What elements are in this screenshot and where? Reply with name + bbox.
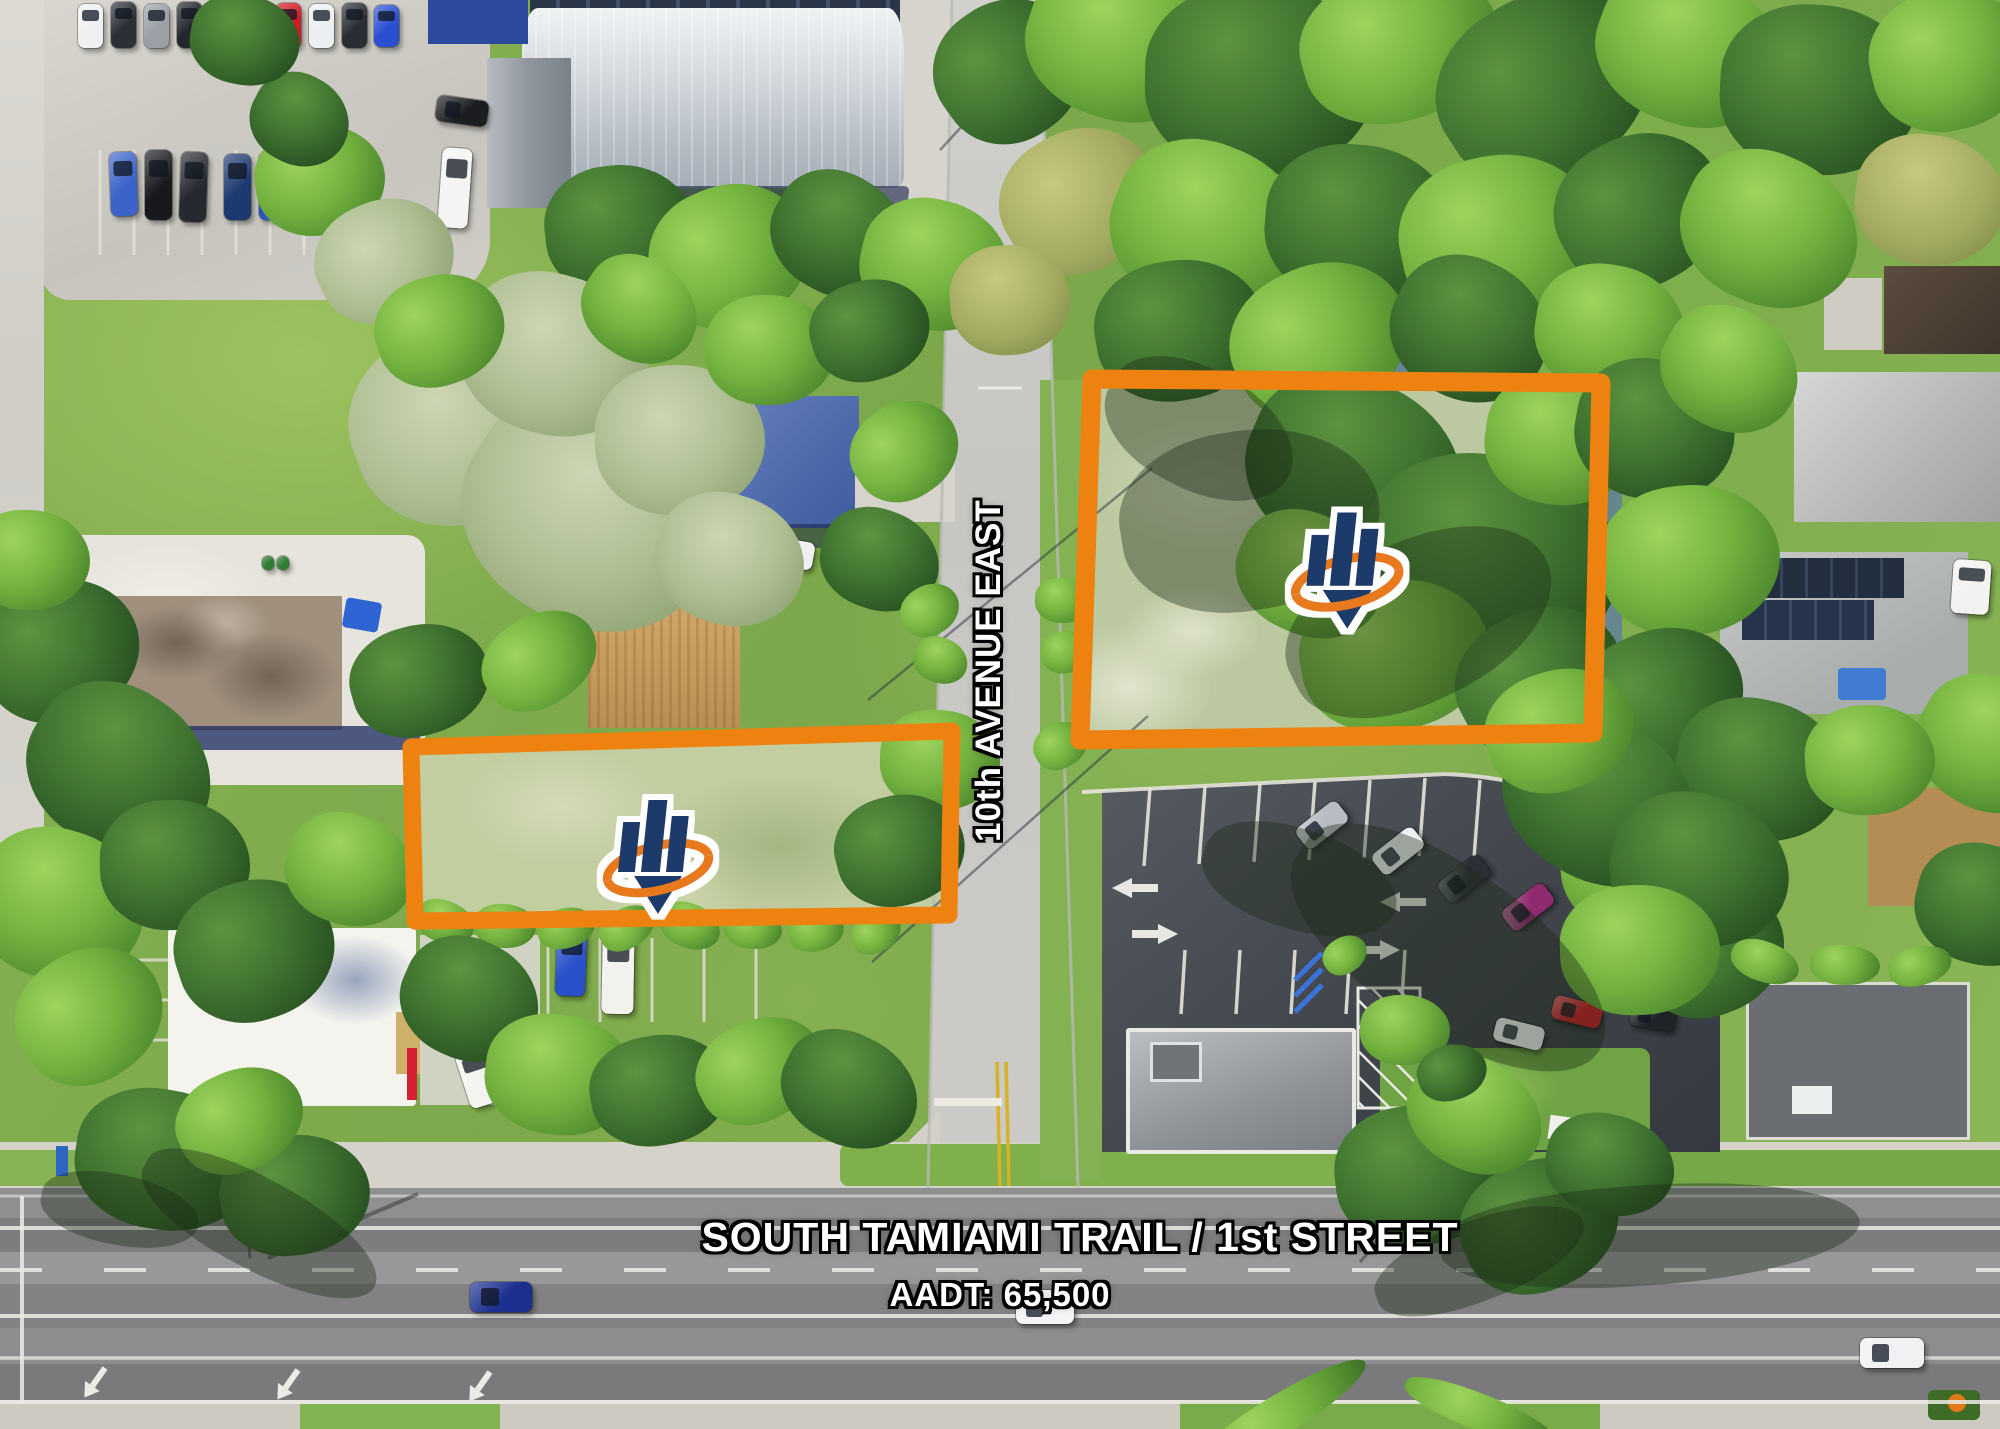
aerial-scene: 10th AVENUE EAST SOUTH TAMIAMI TRAIL / 1… [0,0,2000,1429]
main-road-label: SOUTH TAMIAMI TRAIL / 1st STREET [650,1214,1510,1261]
traffic-count-label: AADT: 65,500 [700,1276,1300,1314]
cross-street-label: 10th AVENUE EAST [966,512,1012,842]
west-parcel-logo-pin-icon [602,800,714,914]
east-parcel-logo-pin-icon [1290,512,1404,628]
